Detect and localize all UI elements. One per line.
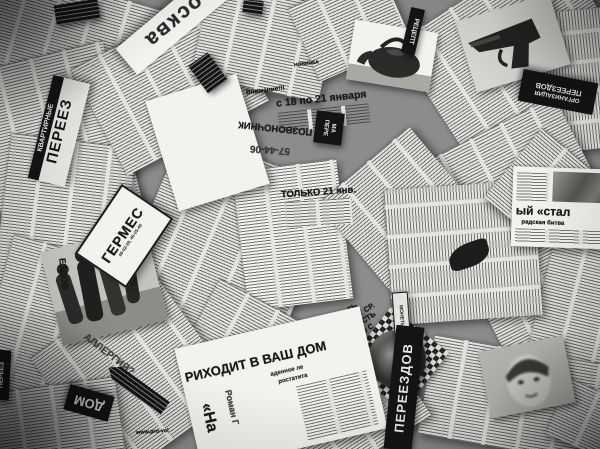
kettle-photo [346, 20, 438, 92]
recept-text: РЕЦЕПТ [407, 17, 420, 44]
pereezd-master-word1: ПЕРЕ [321, 119, 329, 136]
stalingrad-article: ый «стал радская битва [511, 166, 600, 250]
stalingrad-body-lines [515, 228, 600, 245]
ad-black-box [242, 0, 264, 15]
pereezd-master-box: ПЕРЕ МА [313, 110, 345, 145]
stalingrad-subhead: радская битва [521, 219, 564, 226]
home-article-quote: «На [198, 402, 220, 434]
home-article-body-lines [296, 370, 379, 441]
dom-box-text: ДОМ [73, 392, 106, 413]
pereezd-master-word2: МА [329, 123, 336, 133]
left-edge-band-text: ПЕРЕЕЗ [0, 362, 6, 388]
pereezdov-banner-text: ПЕРЕЕЗДОВ [393, 343, 416, 434]
only21-schedule-lines [285, 198, 353, 229]
home-article-byline: Роман Г [223, 389, 240, 426]
stalingrad-headline: ый «стал [516, 204, 571, 218]
kettle-photo-shape [346, 20, 438, 92]
stalingrad-article-photo [552, 171, 600, 203]
stalingrad-article-lines [516, 172, 549, 201]
spine-ad-phone: 57-44-06 [250, 143, 291, 156]
newspaper-collage-photo: осква КВАРТИРНЫЕ ПЕРЕЕЗ ГЕРМЕС 46-02-28,… [0, 0, 600, 449]
